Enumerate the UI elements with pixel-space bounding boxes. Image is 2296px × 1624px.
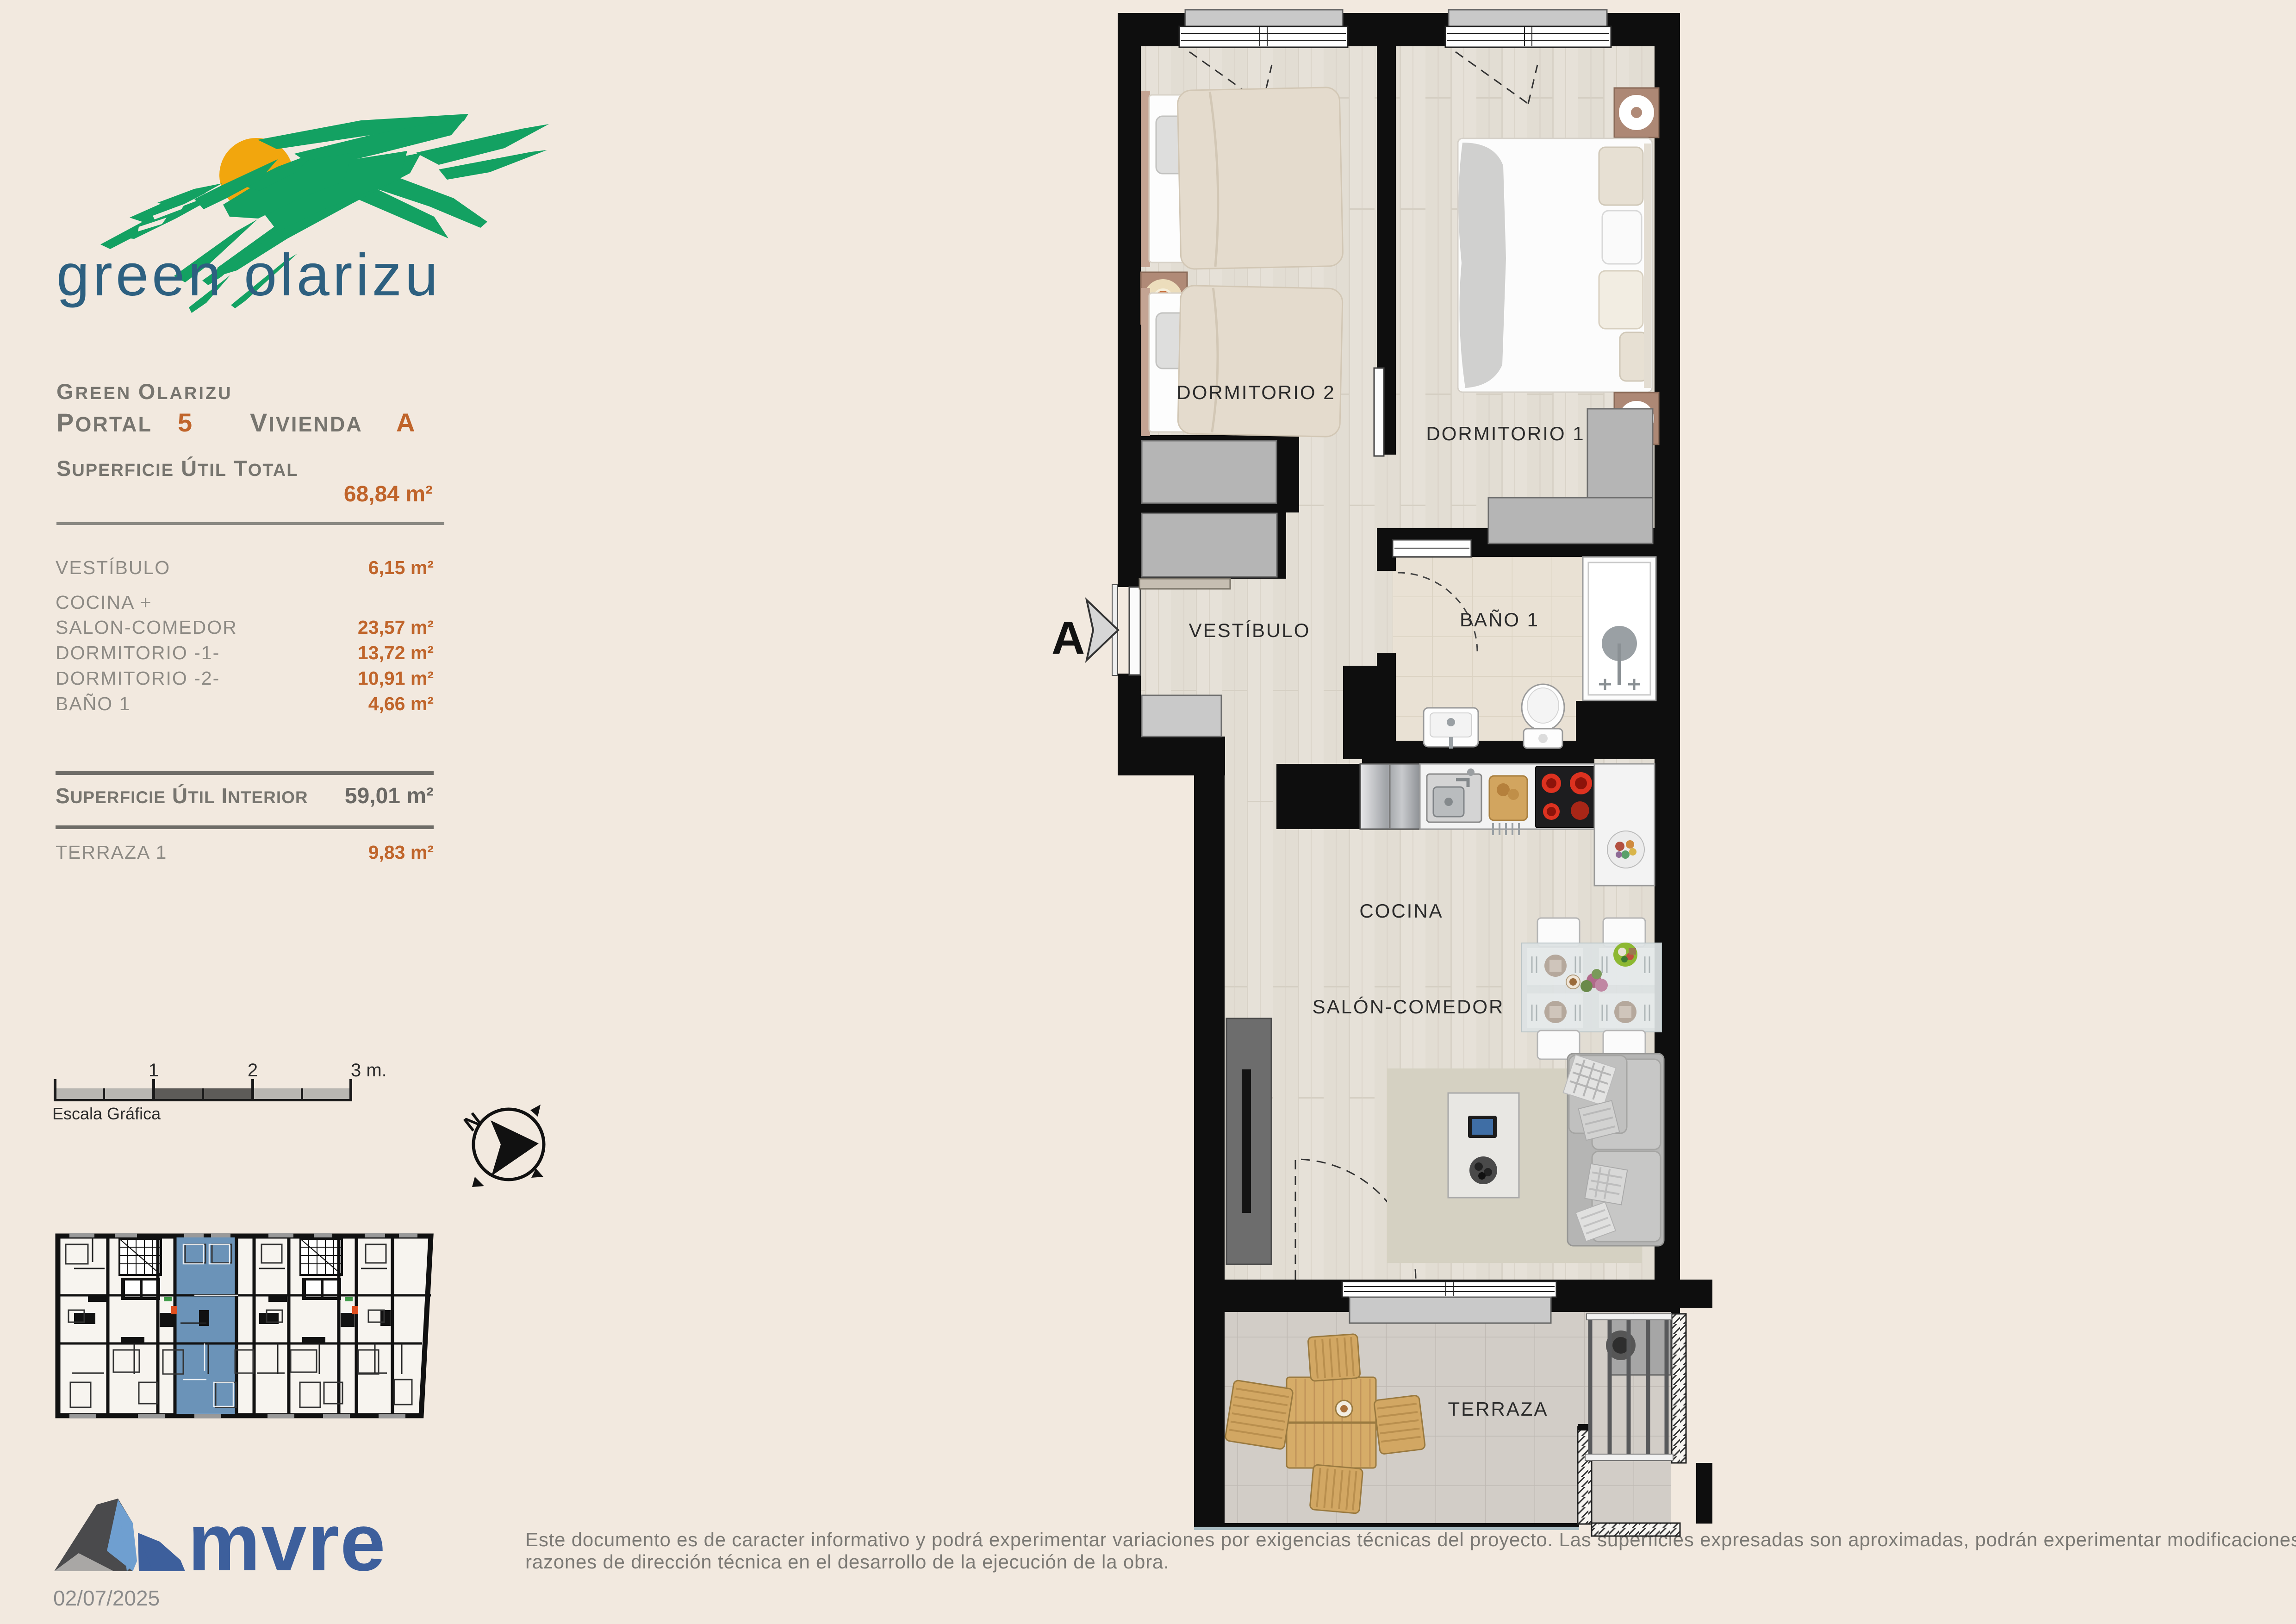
svg-text:4,66 m²: 4,66 m² (368, 693, 434, 714)
svg-text:13,72 m²: 13,72 m² (358, 642, 434, 663)
svg-text:6,15 m²: 6,15 m² (368, 557, 434, 578)
svg-text:DORMITORIO 2: DORMITORIO 2 (1176, 381, 1335, 403)
svg-text:DORMITORIO 1: DORMITORIO 1 (1426, 423, 1585, 444)
svg-text:Escala Gráfica: Escala Gráfica (52, 1104, 161, 1123)
svg-text:razones de dirección técnica e: razones de dirección técnica en el desar… (525, 1551, 1170, 1573)
svg-text:02/07/2025: 02/07/2025 (53, 1586, 160, 1610)
svg-text:green olarizu: green olarizu (56, 242, 441, 308)
svg-text:59,01 m²: 59,01 m² (345, 784, 434, 808)
svg-text:68,84 m²: 68,84 m² (344, 482, 433, 506)
svg-text:DORMITORIO -1-: DORMITORIO -1- (56, 642, 220, 663)
svg-text:SALON-COMEDOR: SALON-COMEDOR (56, 617, 237, 638)
svg-text:VESTÍBULO: VESTÍBULO (1189, 619, 1311, 641)
svg-text:9,83 m²: 9,83 m² (368, 842, 434, 863)
svg-text:TERRAZA 1: TERRAZA 1 (56, 842, 167, 863)
svg-text:BAÑO 1: BAÑO 1 (56, 693, 131, 714)
svg-text:SALÓN-COMEDOR: SALÓN-COMEDOR (1313, 996, 1505, 1018)
svg-text:DORMITORIO -2-: DORMITORIO -2- (56, 668, 220, 689)
svg-text:VESTÍBULO: VESTÍBULO (56, 557, 170, 578)
svg-text:23,57 m²: 23,57 m² (358, 617, 434, 638)
svg-text:COCINA: COCINA (1359, 900, 1443, 922)
svg-text:A: A (1052, 612, 1085, 664)
svg-text:2: 2 (248, 1060, 258, 1081)
svg-text:mvre: mvre (188, 1497, 386, 1588)
svg-text:3 m.: 3 m. (351, 1060, 387, 1081)
svg-text:BAÑO 1: BAÑO 1 (1460, 609, 1539, 631)
svg-text:10,91 m²: 10,91 m² (358, 668, 434, 689)
svg-text:TERRAZA: TERRAZA (1448, 1398, 1548, 1420)
svg-text:COCINA +: COCINA + (56, 592, 152, 613)
svg-text:Este documento es de caracter: Este documento es de caracter informativ… (525, 1529, 2296, 1550)
svg-text:1: 1 (149, 1060, 159, 1081)
